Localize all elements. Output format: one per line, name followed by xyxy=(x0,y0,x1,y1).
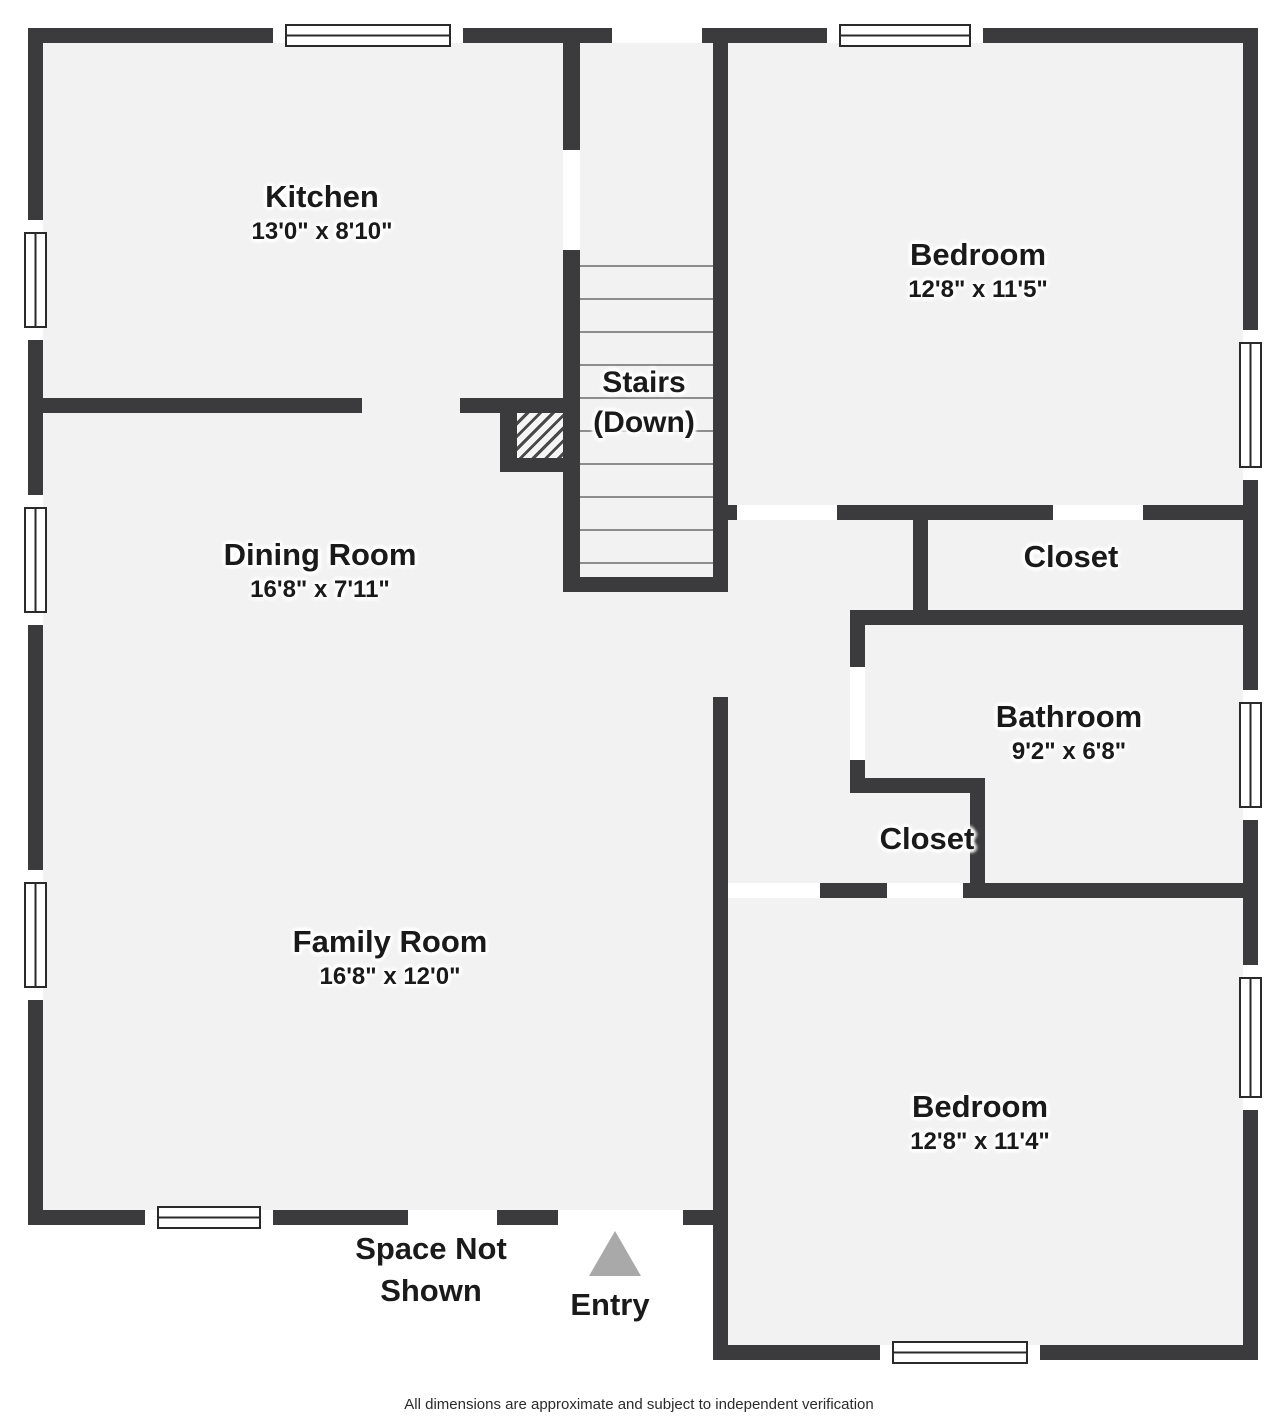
room-name: Stairs xyxy=(593,363,695,403)
room-dims: (Down) xyxy=(593,403,695,443)
room-dims: 16'8" x 7'11" xyxy=(224,574,417,605)
door-bedroom-top xyxy=(737,505,837,520)
floor-main xyxy=(43,43,1243,1210)
window-kitchen-left-frame xyxy=(24,232,47,328)
wall-closet-top-bottom xyxy=(850,610,1243,625)
stair-tread xyxy=(580,496,713,498)
chase-hatch xyxy=(517,413,563,458)
wall-closet-small-top xyxy=(850,778,985,793)
disclaimer-text: All dimensions are approximate and subje… xyxy=(0,1396,1278,1413)
room-name: Closet xyxy=(880,820,975,858)
wall-stairs-left xyxy=(563,250,580,592)
wall-family-bedroom xyxy=(713,697,728,1360)
room-label-bathroom: Bathroom 9'2" x 6'8" xyxy=(996,698,1142,767)
wall-stairs-bottom xyxy=(563,577,728,592)
stair-tread xyxy=(580,562,713,564)
room-dims: 9'2" x 6'8" xyxy=(996,736,1142,767)
room-dims: 12'8" x 11'5" xyxy=(908,274,1048,305)
opening-entry xyxy=(558,1210,683,1225)
room-label-family-room: Family Room 16'8" x 12'0" xyxy=(293,923,488,992)
door-bathroom xyxy=(850,667,865,760)
opening-kitchen-dining xyxy=(362,398,460,413)
room-name: Closet xyxy=(1024,538,1119,576)
window-bedroom-bottom-south-frame xyxy=(892,1341,1028,1364)
opening-family-south xyxy=(408,1210,497,1225)
door-back-entry xyxy=(612,28,702,43)
floorplan-canvas: Kitchen 13'0" x 8'10" Bedroom 12'8" x 11… xyxy=(0,0,1278,1427)
space-not-shown-label: Space Not Shown xyxy=(331,1228,531,1312)
window-family-left-frame xyxy=(24,882,47,988)
wall-chase-left xyxy=(500,413,517,458)
window-bedroom-top-frame xyxy=(839,24,971,47)
stair-tread xyxy=(580,331,713,333)
stair-tread xyxy=(580,298,713,300)
room-name: Kitchen xyxy=(252,178,393,216)
window-family-bottom-frame xyxy=(157,1206,261,1229)
room-dims: 13'0" x 8'10" xyxy=(252,216,393,247)
room-label-dining-room: Dining Room 16'8" x 7'11" xyxy=(224,536,417,605)
wall-kitchen-dining xyxy=(43,398,580,413)
wall-kitchen-landing-stub xyxy=(563,43,580,150)
window-bathroom-right-frame xyxy=(1239,702,1262,808)
room-dims: 16'8" x 12'0" xyxy=(293,961,488,992)
room-name: Dining Room xyxy=(224,536,417,574)
entry-label: Entry xyxy=(570,1284,649,1326)
stair-tread xyxy=(580,265,713,267)
room-dims: 12'8" x 11'4" xyxy=(910,1126,1050,1157)
wall-closet-top-left xyxy=(913,520,928,610)
window-kitchen-top-frame xyxy=(285,24,451,47)
room-label-closet-small: Closet xyxy=(880,820,975,858)
window-dining-left-frame xyxy=(24,507,47,613)
door-closet-top xyxy=(1053,505,1143,520)
door-closet-small xyxy=(887,883,963,898)
room-label-bedroom-bottom: Bedroom 12'8" x 11'4" xyxy=(910,1088,1050,1157)
door-bedroom-bottom xyxy=(728,883,820,898)
stair-tread xyxy=(580,463,713,465)
room-label-closet-top: Closet xyxy=(1024,538,1119,576)
room-name: Bedroom xyxy=(910,1088,1050,1126)
wall-bedroom-top-left xyxy=(713,43,728,592)
room-name: Bathroom xyxy=(996,698,1142,736)
room-name: Family Room xyxy=(293,923,488,961)
room-label-kitchen: Kitchen 13'0" x 8'10" xyxy=(252,178,393,247)
window-bedroom-bottom-right-frame xyxy=(1239,977,1262,1098)
wall-exterior-left xyxy=(28,28,43,1225)
door-kitchen-landing xyxy=(563,150,580,250)
stair-tread xyxy=(580,529,713,531)
room-name: Bedroom xyxy=(908,236,1048,274)
room-label-stairs: Stairs (Down) xyxy=(593,363,695,443)
entry-arrow-icon xyxy=(589,1231,641,1276)
window-bedroom-top-right-frame xyxy=(1239,342,1262,468)
room-label-bedroom-top: Bedroom 12'8" x 11'5" xyxy=(908,236,1048,305)
floor-bedroom-bottom-extension xyxy=(728,1210,1243,1345)
